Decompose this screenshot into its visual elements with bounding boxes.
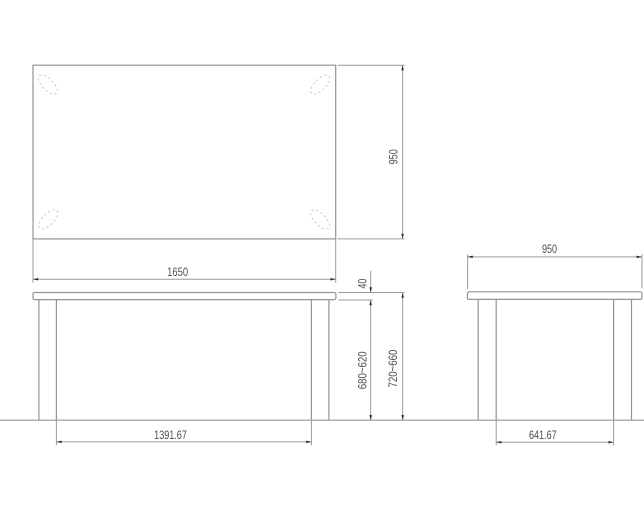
svg-text:680~620: 680~620 bbox=[356, 351, 369, 389]
svg-text:950: 950 bbox=[387, 149, 401, 164]
svg-text:720~660: 720~660 bbox=[387, 350, 400, 388]
svg-text:641.67: 641.67 bbox=[529, 429, 557, 443]
svg-text:40: 40 bbox=[356, 279, 370, 289]
svg-text:1391.67: 1391.67 bbox=[154, 429, 187, 443]
svg-text:950: 950 bbox=[542, 243, 557, 257]
svg-text:1650: 1650 bbox=[167, 266, 188, 280]
